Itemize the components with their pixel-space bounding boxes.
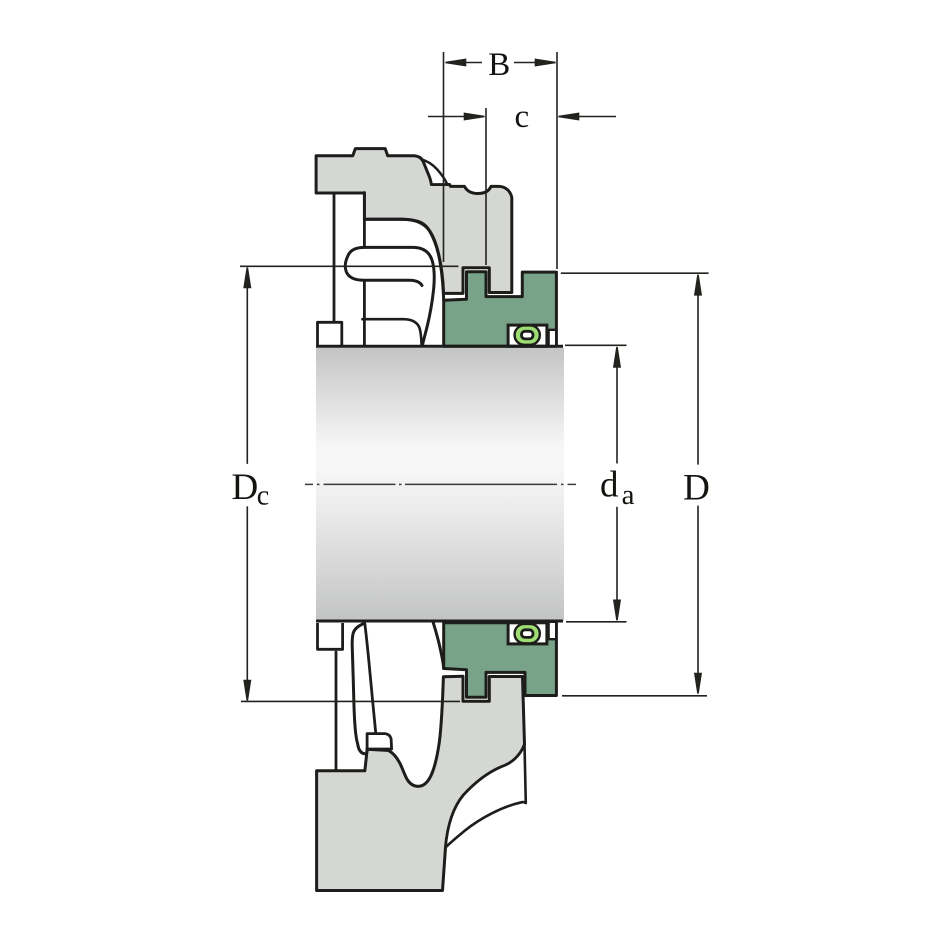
- svg-text:c: c: [257, 480, 269, 511]
- svg-text:B: B: [488, 47, 510, 83]
- svg-text:c: c: [514, 99, 529, 135]
- svg-text:D: D: [232, 467, 259, 508]
- svg-text:a: a: [622, 479, 635, 511]
- svg-text:d: d: [600, 465, 619, 506]
- svg-text:D: D: [683, 467, 710, 508]
